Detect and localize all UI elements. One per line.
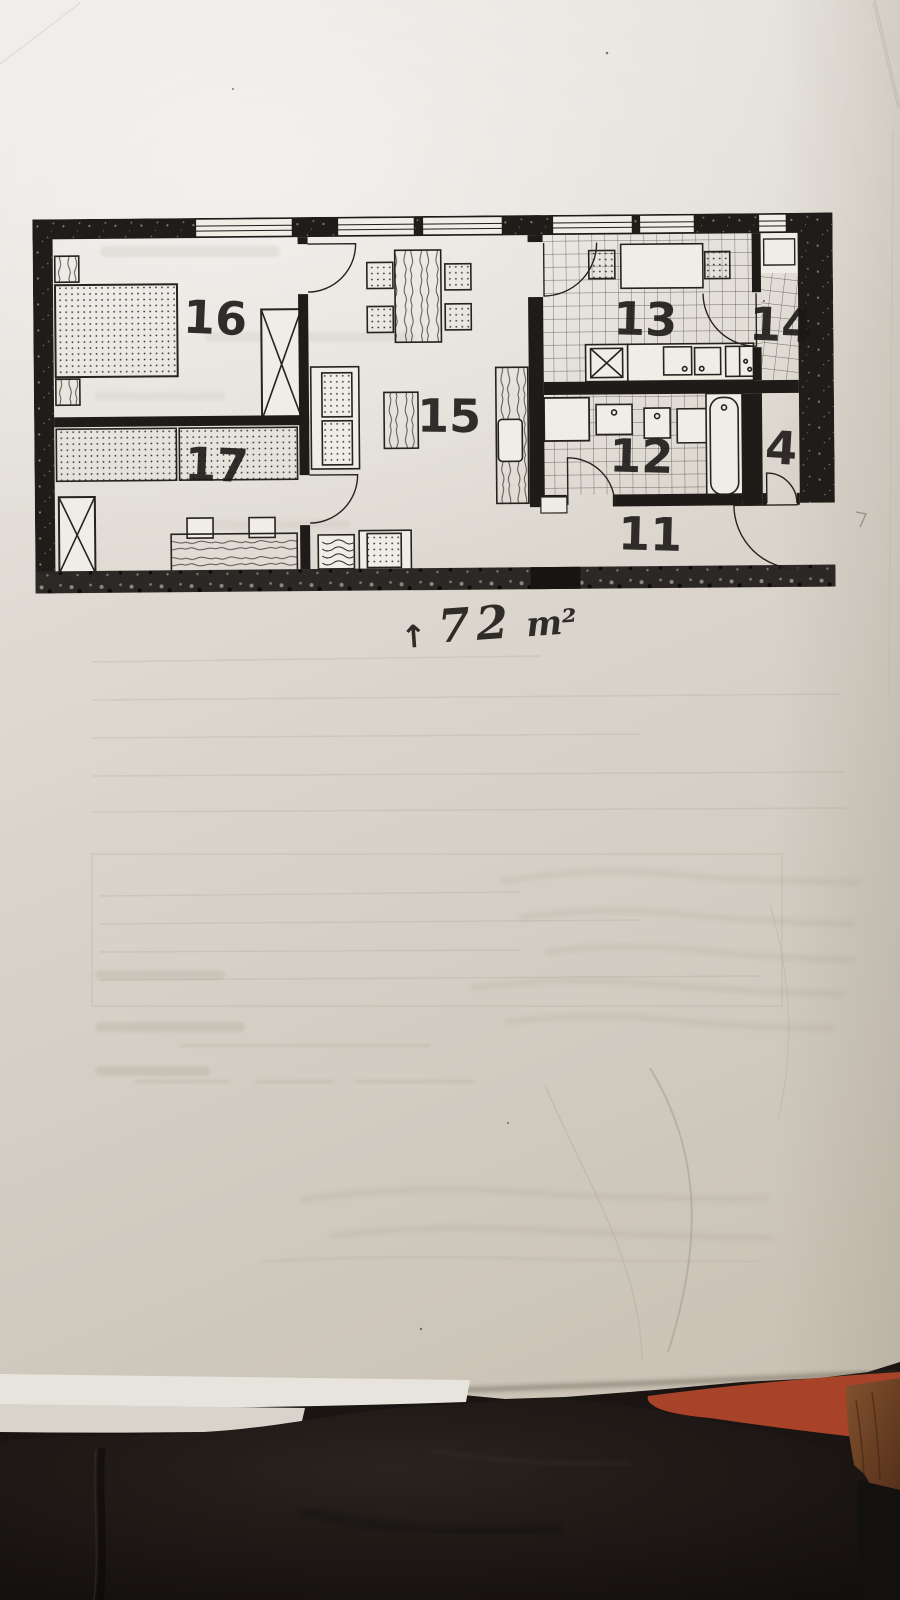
double-bed-symbol (55, 284, 178, 377)
window-symbol (422, 216, 502, 235)
door-wc (767, 473, 797, 503)
up-arrow-icon: ↑ (400, 618, 428, 656)
sofa-cushion (322, 421, 352, 465)
fabric-seam (100, 1448, 102, 1600)
room-label-15: 15 (417, 389, 481, 444)
ghost-scribble (300, 1189, 770, 1200)
door-room17 (310, 475, 358, 523)
sink-symbol (664, 347, 692, 375)
ghost-scribble (520, 911, 855, 924)
pantry-furniture (761, 233, 798, 273)
ghost-scribble (505, 1016, 835, 1028)
pen-mark (856, 512, 866, 527)
wall-bedrooms-living (298, 294, 310, 475)
ghost-line (100, 892, 520, 896)
crease-line (889, 130, 893, 700)
dining-chair-symbol (445, 304, 471, 330)
ghost-form-lines (92, 656, 845, 812)
wall-bedrooms-living-stub (298, 237, 308, 244)
wall-bottom (35, 565, 835, 594)
under-sheet-edge (0, 1374, 470, 1408)
crease-line (545, 1085, 642, 1360)
ghost-line (92, 734, 640, 738)
ghost-line (92, 808, 845, 812)
wall-kitchen-pantry-upper (752, 233, 762, 292)
photographed-document: 16 17 15 13 14 12 11 4 ↑ 72 m² (0, 0, 900, 1600)
kitchen-table-symbol (621, 244, 703, 289)
threshold-step (541, 497, 567, 513)
wall-living-kitchen (528, 297, 545, 507)
ghost-line (92, 694, 840, 700)
ghost-underline (180, 1044, 430, 1047)
tv-symbol (498, 419, 522, 461)
room-label-16: 16 (182, 290, 248, 347)
crease-line (875, 0, 900, 108)
wall-kitchen-pantry-lower (753, 347, 762, 380)
area-unit: m² (525, 602, 579, 645)
area-value: 72 (436, 594, 516, 653)
ghost-line (100, 920, 640, 924)
door-entry (734, 505, 799, 570)
desk-symbol (171, 533, 297, 572)
room-label-11: 11 (617, 506, 682, 562)
ghost-line (100, 950, 520, 952)
wall-bath-hall-right (613, 493, 743, 506)
crease-shadow (873, 2, 898, 108)
ghost-line (92, 656, 540, 662)
wall-living-kitchen-stub (528, 235, 543, 242)
wall-between-bedrooms (54, 415, 309, 427)
pencil-loop-mark (650, 1068, 692, 1352)
speck (507, 1122, 509, 1124)
ghost-line (92, 772, 845, 776)
room-label-14: 14 (748, 297, 814, 354)
wall-kitchen-bath (544, 380, 799, 395)
room-label-12: 12 (609, 428, 674, 484)
wall-right-upper (797, 213, 835, 503)
window-symbol (552, 215, 632, 234)
dining-chair-symbol (445, 264, 471, 290)
ghost-bar (95, 970, 225, 980)
room-17-furniture (56, 427, 298, 573)
window-symbol (195, 218, 292, 237)
door-room16 (308, 244, 356, 292)
window-symbol (337, 217, 414, 236)
ghost-small-text-line (260, 1257, 760, 1262)
wall-bedrooms-living-lower (300, 525, 310, 569)
crease-shadow (0, 3, 80, 64)
wall-bath-wc (742, 393, 763, 505)
stool-symbol (705, 251, 730, 278)
dark-fabric-right (857, 1480, 900, 1600)
toilet-symbol (677, 409, 707, 443)
nightstand-symbol (56, 379, 80, 405)
speck (232, 88, 234, 90)
speck (606, 52, 609, 55)
window-symbol (758, 214, 786, 232)
photo-background (0, 1330, 900, 1600)
wall-bottom-solid-segment (530, 567, 580, 589)
window-symbol (639, 215, 694, 233)
room-16-furniture (55, 254, 302, 421)
ghost-scribble (545, 946, 855, 960)
ghost-underline (135, 1080, 230, 1083)
ghost-bar (95, 1022, 245, 1032)
ghost-underline (255, 1080, 335, 1083)
dining-table-symbol (395, 250, 442, 342)
ghost-scribble (470, 981, 845, 994)
armchair-cushion (367, 533, 401, 567)
ghost-labels (95, 970, 475, 1083)
room-label-17: 17 (183, 437, 249, 494)
crease-line (770, 905, 789, 1120)
floor-plan: 16 17 15 13 14 12 11 4 (32, 213, 835, 596)
sofa-cushion (322, 373, 352, 417)
dining-chair-symbol (367, 306, 393, 332)
dining-chair-symbol (367, 262, 393, 288)
ghost-bar (95, 1066, 210, 1076)
wall-left (32, 219, 55, 593)
paper-sheet: 16 17 15 13 14 12 11 4 ↑ 72 m² (0, 0, 900, 1420)
washing-machine-symbol (544, 398, 589, 441)
ghost-scribble (330, 1228, 775, 1238)
nightstand-symbol (55, 256, 79, 282)
single-bed-symbol (56, 428, 176, 481)
sink-symbol (695, 347, 721, 374)
pantry-counter (764, 239, 795, 265)
crease-line (0, 0, 78, 60)
coffee-table-symbol (384, 392, 418, 448)
room-label-4: 4 (764, 420, 799, 476)
ghost-scribble (500, 871, 860, 882)
room-label-13: 13 (613, 291, 678, 347)
ghost-underline (355, 1080, 475, 1083)
